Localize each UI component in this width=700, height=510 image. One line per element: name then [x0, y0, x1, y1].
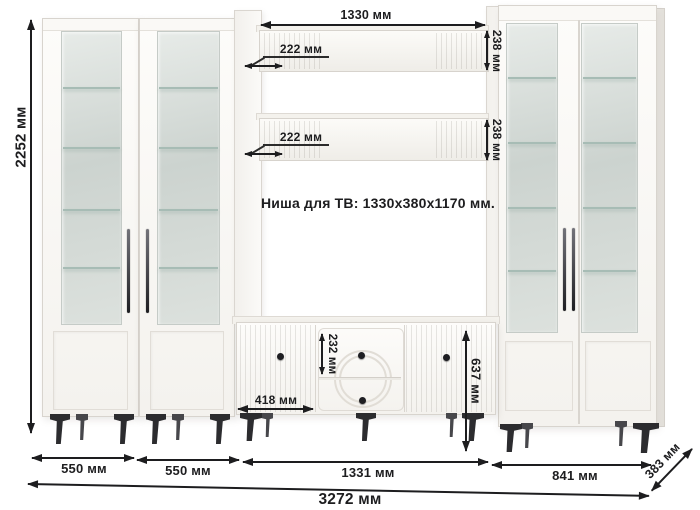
dim-label-left-cabinet2-width: 550 мм	[165, 463, 211, 478]
left-display-cabinet-2	[139, 18, 235, 417]
glass-shelf	[159, 267, 218, 269]
dim-label-top-shelf-length: 1330 мм	[340, 8, 391, 22]
dim-label-stand-door-width: 418 мм	[255, 393, 297, 407]
dim-arrow-center-section-width	[243, 461, 488, 463]
glass-shelf	[508, 142, 556, 144]
cabinet-foot	[500, 424, 522, 452]
dim-arrow-middle-shelf-height	[486, 120, 488, 160]
glass-shelf	[508, 77, 556, 79]
glass-shelf	[508, 207, 556, 209]
dim-arrow-top-shelf-height	[486, 31, 488, 70]
dim-label-right-cabinet-width: 841 мм	[552, 468, 598, 483]
glass-shelf	[583, 77, 636, 79]
glass-shelf	[583, 142, 636, 144]
glass-door	[157, 31, 220, 325]
stand-door-divide	[404, 325, 405, 412]
glass-shelf	[159, 87, 218, 89]
dim-arrow-top-shelf-length	[261, 24, 485, 26]
stand-foot	[240, 413, 262, 441]
glass-shelf	[159, 147, 218, 149]
dim-label-top-shelf-height: 238 мм	[490, 30, 504, 72]
cabinet-foot	[521, 423, 533, 448]
door-knob	[443, 354, 450, 361]
dim-arrow-stand-door-width	[238, 408, 313, 410]
dim-label-middle-shelf-depth: 222 мм	[280, 130, 322, 144]
stand-door-divide	[315, 325, 316, 412]
glass-door	[506, 23, 558, 333]
dim-label-total-width: 3272 мм	[318, 491, 381, 509]
shelf-groove-texture	[436, 33, 484, 69]
door-divide	[578, 20, 580, 424]
door-handle	[572, 228, 575, 311]
glass-shelf	[583, 207, 636, 209]
furniture-dimension-diagram: 2252 мм 1330 мм 238 мм 238 мм 222 мм 222…	[0, 0, 700, 510]
dim-arrow-stand-height	[465, 331, 467, 451]
shelf-groove-texture	[436, 121, 484, 158]
dim-label-stand-height: 637 мм	[469, 358, 484, 404]
door-bottom-panel	[505, 341, 573, 411]
drawer-knob	[359, 397, 366, 404]
dim-arrow-drawer-height	[321, 334, 323, 374]
cabinet-foot	[114, 414, 134, 444]
stand-foot	[262, 413, 273, 437]
drawer-split	[319, 377, 401, 380]
glass-shelf	[63, 147, 120, 149]
dim-arrow-top-shelf-depth	[245, 65, 282, 67]
dim-arrow-middle-shelf-depth	[245, 153, 282, 155]
door-bottom-panel	[585, 341, 651, 411]
stand-foot	[446, 413, 457, 437]
cabinet-cornice	[140, 19, 234, 31]
door-handle	[146, 229, 149, 313]
cabinet-foot	[633, 423, 659, 453]
door-handle	[563, 228, 566, 311]
cabinet-foot	[615, 421, 627, 446]
glass-shelf	[63, 267, 120, 269]
dim-arrow-left-cabinet2-width	[137, 459, 239, 461]
glass-shelf	[63, 87, 120, 89]
glass-shelf	[63, 209, 120, 211]
niche-side-panel-left	[234, 10, 262, 324]
dim-arrow-left-cabinet1-width	[32, 457, 134, 459]
door-handle	[127, 229, 130, 313]
glass-door	[61, 31, 122, 325]
dim-label-total-height: 2252 мм	[13, 106, 30, 167]
left-display-cabinet-1	[42, 18, 139, 417]
door-knob	[277, 353, 284, 360]
dim-label-top-shelf-depth: 222 мм	[280, 42, 322, 56]
cabinet-foot	[50, 414, 70, 444]
dim-label-middle-shelf-height: 238 мм	[490, 119, 504, 161]
right-display-cabinet	[498, 5, 657, 427]
glass-shelf	[159, 209, 218, 211]
glass-shelf	[508, 270, 556, 272]
dim-arrow-total-height	[30, 20, 32, 433]
dim-depth-group: 383 мм	[651, 448, 691, 490]
dim-label-center-section-width: 1331 мм	[341, 465, 394, 480]
door-bottom-panel	[53, 331, 128, 410]
stand-foot	[356, 413, 376, 441]
drawer-knob	[358, 352, 365, 359]
cabinet-foot	[146, 414, 166, 444]
cabinet-foot	[172, 414, 184, 440]
tv-niche-label: Ниша для ТВ: 1330x380x1170 мм.	[261, 195, 495, 211]
cabinet-foot	[76, 414, 88, 440]
cabinet-cornice	[499, 6, 656, 21]
glass-shelf	[583, 270, 636, 272]
dim-arrow-right-cabinet-width	[492, 464, 651, 466]
cabinet-cornice	[43, 19, 138, 31]
dim-label-left-cabinet1-width: 550 мм	[61, 461, 107, 476]
dim-leader	[263, 56, 329, 58]
glass-door	[581, 23, 638, 333]
door-bottom-panel	[150, 331, 224, 410]
dim-label-drawer-height: 232 мм	[326, 334, 338, 375]
cabinet-foot	[210, 414, 230, 444]
dim-leader	[263, 144, 329, 146]
